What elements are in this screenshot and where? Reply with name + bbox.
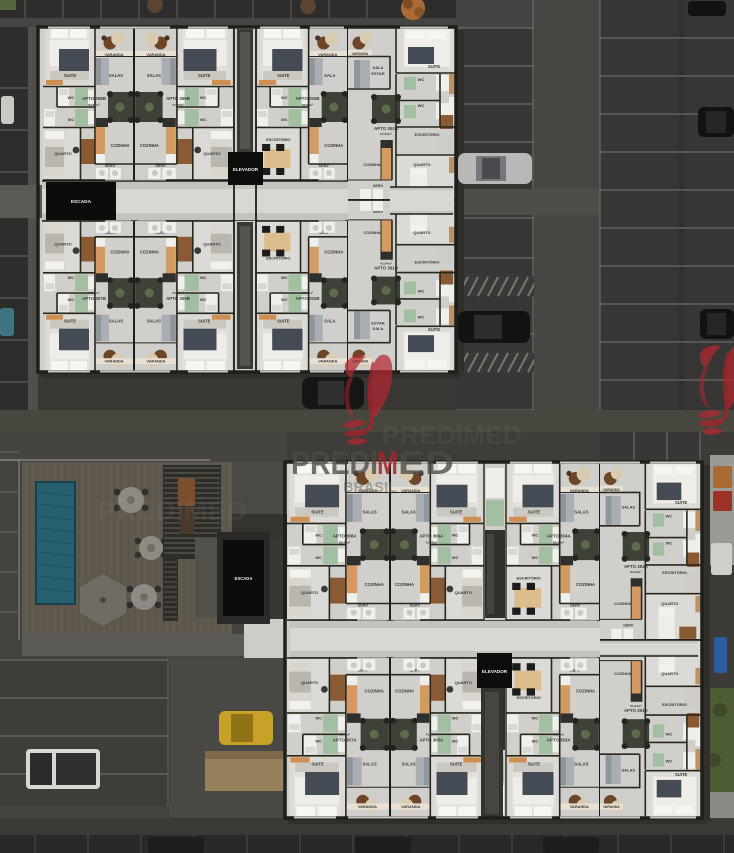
svg-text:WC: WC bbox=[68, 117, 75, 122]
svg-text:ESCRITÓRIO: ESCRITÓRIO bbox=[662, 702, 687, 707]
svg-text:61,94m²: 61,94m² bbox=[380, 132, 391, 136]
svg-text:QUARTO: QUARTO bbox=[455, 590, 472, 595]
svg-text:SUITE: SUITE bbox=[311, 510, 324, 515]
svg-text:APTO 305A: APTO 305A bbox=[419, 738, 444, 743]
svg-text:ESCRITÓRIO: ESCRITÓRIO bbox=[415, 132, 440, 137]
svg-text:SUITE: SUITE bbox=[277, 319, 290, 324]
svg-text:COZINHA: COZINHA bbox=[395, 582, 414, 587]
svg-text:SALAS: SALAS bbox=[147, 319, 161, 324]
svg-text:WC: WC bbox=[418, 77, 425, 82]
svg-text:APTO 308B: APTO 308B bbox=[82, 96, 106, 101]
svg-text:COZINHA: COZINHA bbox=[614, 602, 632, 606]
svg-text:SUITE: SUITE bbox=[198, 73, 211, 78]
svg-text:PREDIMED: PREDIMED bbox=[382, 420, 522, 450]
svg-text:VARANDA: VARANDA bbox=[401, 804, 420, 809]
svg-text:SALAS: SALAS bbox=[362, 510, 376, 515]
svg-text:SALAS: SALAS bbox=[109, 73, 123, 78]
svg-text:WC: WC bbox=[200, 275, 207, 280]
svg-text:SALAS: SALAS bbox=[401, 510, 415, 515]
svg-text:APTO 306B: APTO 306B bbox=[166, 96, 190, 101]
svg-text:QUARTO: QUARTO bbox=[54, 151, 71, 156]
svg-text:VARANDA: VARANDA bbox=[318, 359, 337, 364]
svg-text:WC: WC bbox=[532, 532, 539, 537]
svg-text:WC: WC bbox=[418, 103, 425, 108]
svg-text:APTO 301B: APTO 301B bbox=[374, 266, 398, 271]
svg-text:WC: WC bbox=[532, 555, 539, 560]
svg-text:VARANDA: VARANDA bbox=[146, 359, 165, 364]
svg-text:SUITE: SUITE bbox=[64, 73, 77, 78]
svg-text:ESCRITÓRIO: ESCRITÓRIO bbox=[662, 570, 687, 575]
svg-text:QUARTO: QUARTO bbox=[455, 680, 472, 685]
svg-text:ESCRITÓRIO: ESCRITÓRIO bbox=[415, 260, 440, 265]
svg-text:SUITE: SUITE bbox=[277, 73, 290, 78]
svg-text:ESCADA: ESCADA bbox=[71, 199, 92, 205]
svg-text:SUITE: SUITE bbox=[528, 762, 541, 767]
svg-text:BRASIL: BRASIL bbox=[343, 479, 397, 496]
svg-text:WC: WC bbox=[281, 95, 288, 100]
svg-text:APTO 304B: APTO 304B bbox=[296, 96, 320, 101]
svg-text:SUITE: SUITE bbox=[428, 327, 441, 332]
svg-text:ESCRITÓRIO: ESCRITÓRIO bbox=[517, 576, 541, 581]
svg-text:ESCRITÓRIO: ESCRITÓRIO bbox=[266, 137, 290, 142]
svg-text:QUARTO: QUARTO bbox=[203, 242, 220, 247]
svg-text:APTO 306A: APTO 306A bbox=[419, 533, 444, 538]
svg-text:QUARTO: QUARTO bbox=[203, 151, 220, 156]
svg-text:SUITE: SUITE bbox=[311, 762, 324, 767]
svg-text:WC: WC bbox=[281, 275, 288, 280]
svg-text:WC: WC bbox=[315, 739, 322, 744]
svg-text:COZINHA: COZINHA bbox=[140, 250, 159, 255]
svg-text:SALAS: SALAS bbox=[622, 504, 636, 509]
svg-text:61,94m²: 61,94m² bbox=[630, 704, 641, 708]
svg-text:M: M bbox=[377, 445, 398, 481]
svg-text:WC: WC bbox=[68, 297, 75, 302]
svg-text:ELEVADOR: ELEVADOR bbox=[482, 669, 508, 674]
svg-text:ESTAR: ESTAR bbox=[371, 320, 384, 325]
svg-text:WC: WC bbox=[532, 739, 539, 744]
svg-text:QUARTO: QUARTO bbox=[54, 242, 71, 247]
svg-text:SALA: SALA bbox=[324, 319, 335, 324]
svg-text:SUITE: SUITE bbox=[198, 319, 211, 324]
svg-text:VARANDA: VARANDA bbox=[104, 359, 123, 364]
svg-text:SALAS: SALAS bbox=[362, 762, 376, 767]
svg-text:QUARTO: QUARTO bbox=[661, 671, 678, 676]
svg-text:SALAS: SALAS bbox=[574, 510, 588, 515]
svg-text:QUARTO: QUARTO bbox=[301, 590, 318, 595]
svg-text:COZINHA: COZINHA bbox=[140, 143, 159, 148]
svg-text:WC: WC bbox=[666, 540, 673, 545]
svg-text:SUITE: SUITE bbox=[450, 762, 463, 767]
svg-text:WC: WC bbox=[200, 297, 207, 302]
svg-text:SUITE: SUITE bbox=[428, 64, 441, 69]
svg-text:VARANDA: VARANDA bbox=[352, 52, 369, 56]
svg-text:SUITE: SUITE bbox=[675, 772, 688, 777]
svg-text:SALAS: SALAS bbox=[574, 762, 588, 767]
svg-text:WC: WC bbox=[68, 275, 75, 280]
svg-text:PREDI: PREDI bbox=[291, 445, 378, 481]
svg-text:WC: WC bbox=[666, 732, 673, 737]
svg-text:WC: WC bbox=[315, 716, 322, 721]
svg-text:SUITE: SUITE bbox=[450, 510, 463, 515]
svg-text:SALAS: SALAS bbox=[147, 73, 161, 78]
svg-text:APTO 302B: APTO 302B bbox=[374, 126, 398, 131]
svg-text:WC: WC bbox=[200, 117, 207, 122]
svg-text:61,94m²: 61,94m² bbox=[380, 262, 391, 266]
svg-text:SALA: SALA bbox=[373, 65, 384, 70]
svg-text:WC: WC bbox=[452, 716, 459, 721]
svg-text:COZINHA: COZINHA bbox=[365, 582, 384, 587]
svg-text:SERV: SERV bbox=[373, 184, 384, 188]
svg-text:SALAS: SALAS bbox=[109, 319, 123, 324]
svg-text:WC: WC bbox=[418, 314, 425, 319]
svg-text:WC: WC bbox=[532, 716, 539, 721]
svg-text:WC: WC bbox=[315, 532, 322, 537]
svg-text:SALAS: SALAS bbox=[401, 762, 415, 767]
svg-text:COZINHA: COZINHA bbox=[110, 250, 129, 255]
svg-text:VARANDA: VARANDA bbox=[358, 804, 377, 809]
svg-text:VARANDA: VARANDA bbox=[603, 805, 620, 809]
svg-text:WC: WC bbox=[68, 95, 75, 100]
svg-text:COZINHA: COZINHA bbox=[324, 250, 343, 255]
svg-text:WC: WC bbox=[452, 739, 459, 744]
svg-text:ESTAR: ESTAR bbox=[371, 71, 384, 76]
svg-text:ELEVADOR: ELEVADOR bbox=[233, 167, 259, 172]
svg-text:WC: WC bbox=[452, 532, 459, 537]
svg-text:PREDIMED: PREDIMED bbox=[97, 496, 247, 526]
svg-text:SALAS: SALAS bbox=[622, 768, 636, 773]
svg-text:COZINHA: COZINHA bbox=[365, 689, 384, 694]
svg-text:COZINHA: COZINHA bbox=[395, 689, 414, 694]
svg-text:SALA: SALA bbox=[373, 326, 384, 331]
svg-text:APTO 305B: APTO 305B bbox=[166, 296, 190, 301]
svg-text:APTO 307B: APTO 307B bbox=[82, 296, 106, 301]
svg-text:COZINHA: COZINHA bbox=[576, 689, 595, 694]
svg-text:WC: WC bbox=[315, 555, 322, 560]
svg-text:61,94m²: 61,94m² bbox=[630, 570, 641, 574]
svg-text:SUITE: SUITE bbox=[675, 500, 688, 505]
svg-text:QUARTO: QUARTO bbox=[413, 162, 430, 167]
svg-text:WC: WC bbox=[418, 289, 425, 294]
svg-text:WC: WC bbox=[281, 297, 288, 302]
svg-text:WC: WC bbox=[452, 555, 459, 560]
svg-text:QUARTO: QUARTO bbox=[413, 230, 430, 235]
svg-text:COZINHA: COZINHA bbox=[110, 143, 129, 148]
svg-text:QUARTO: QUARTO bbox=[661, 601, 678, 606]
svg-text:COZINHA: COZINHA bbox=[576, 582, 595, 587]
svg-text:COZINHA: COZINHA bbox=[363, 163, 381, 167]
svg-text:QUARTO: QUARTO bbox=[301, 680, 318, 685]
svg-text:ED: ED bbox=[398, 445, 454, 481]
svg-text:WC: WC bbox=[281, 117, 288, 122]
svg-text:SERV: SERV bbox=[623, 624, 634, 628]
svg-text:WC: WC bbox=[666, 758, 673, 763]
svg-text:COZINHA: COZINHA bbox=[363, 231, 381, 235]
svg-text:VARANDA: VARANDA bbox=[570, 804, 589, 809]
svg-text:WC: WC bbox=[200, 95, 207, 100]
svg-text:ESCADA: ESCADA bbox=[235, 576, 253, 581]
svg-text:APTO 303B: APTO 303B bbox=[296, 296, 320, 301]
svg-text:SALA: SALA bbox=[324, 73, 335, 78]
svg-text:VARANDA: VARANDA bbox=[603, 488, 620, 492]
svg-text:WC: WC bbox=[666, 514, 673, 519]
svg-text:SUITE: SUITE bbox=[64, 319, 77, 324]
svg-text:SUITE: SUITE bbox=[528, 510, 541, 515]
svg-text:COZINHA: COZINHA bbox=[324, 143, 343, 148]
svg-text:COZINHA: COZINHA bbox=[614, 672, 632, 676]
